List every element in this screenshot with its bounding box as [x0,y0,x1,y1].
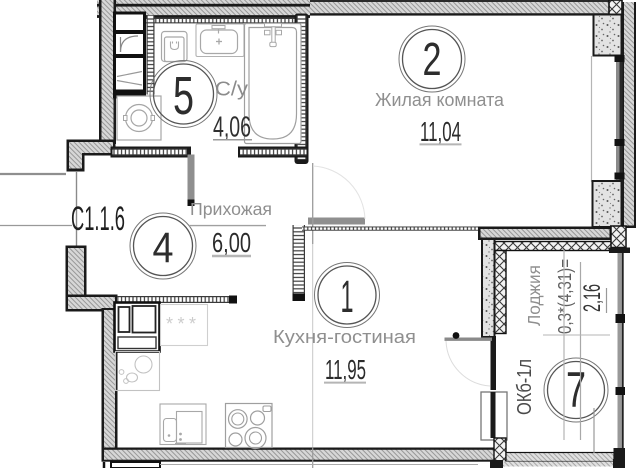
svg-text:2,16: 2,16 [579,284,606,312]
svg-text:5: 5 [173,66,194,126]
svg-text:Жилая комната: Жилая комната [375,89,504,110]
svg-text:***: *** [166,314,201,334]
svg-text:Кухня-гостиная: Кухня-гостиная [273,326,416,347]
svg-text:4,06: 4,06 [213,110,251,143]
svg-text:Лоджия: Лоджия [525,265,544,326]
svg-text:4: 4 [153,225,174,272]
svg-text:7: 7 [566,362,586,418]
svg-text:С/у: С/у [215,77,249,100]
svg-text:1: 1 [341,272,354,322]
svg-text:0,3*(4,31)=: 0,3*(4,31)= [555,259,576,334]
svg-text:2: 2 [423,33,442,85]
svg-text:11,04: 11,04 [420,117,461,148]
svg-text:ОКб-1л: ОКб-1л [513,359,536,415]
svg-text:11,95: 11,95 [325,355,366,386]
svg-text:Прихожая: Прихожая [190,199,272,219]
svg-text:С1.1.6: С1.1.6 [71,199,125,237]
svg-text:6,00: 6,00 [212,228,251,259]
